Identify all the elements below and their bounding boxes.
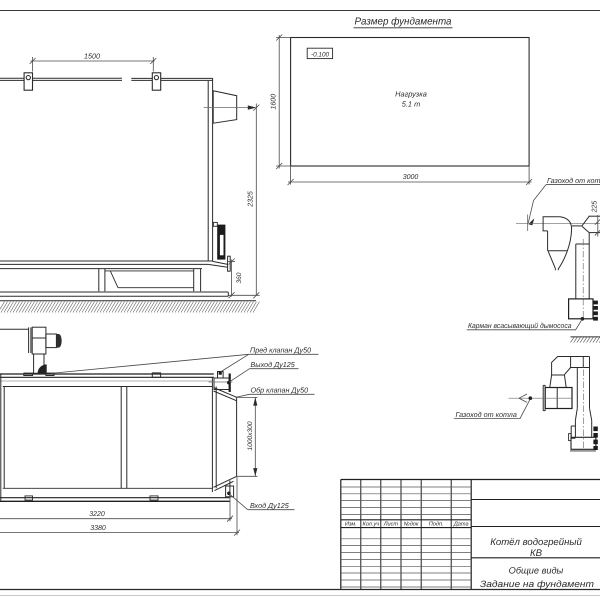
svg-text:2325: 2325 (248, 191, 255, 208)
svg-text:Газоход от котла: Газоход от котла (456, 410, 517, 419)
svg-text:КВ: КВ (530, 548, 543, 559)
svg-text:Газоход от котла: Газоход от котла (547, 176, 600, 185)
svg-text:1600: 1600 (271, 94, 278, 110)
svg-text:Подп.: Подп. (429, 521, 444, 528)
svg-text:5.1 т: 5.1 т (402, 99, 420, 108)
svg-text:Пред клапан Ду50: Пред клапан Ду50 (250, 346, 311, 355)
svg-text:Изм.: Изм. (345, 522, 357, 528)
svg-text:1500: 1500 (84, 52, 100, 61)
svg-text:-0.100: -0.100 (311, 51, 330, 58)
svg-text:Котёл водогрейный: Котёл водогрейный (490, 537, 582, 548)
svg-text:3000: 3000 (403, 174, 419, 181)
svg-text:Кол.уч: Кол.уч (362, 522, 379, 528)
svg-text:Выход Ду125: Выход Ду125 (251, 360, 296, 369)
svg-text:Общие виды: Общие виды (509, 566, 564, 576)
svg-text:1000х300: 1000х300 (247, 421, 254, 450)
svg-text:№док: №док (404, 521, 419, 528)
svg-text:3380: 3380 (90, 525, 106, 532)
svg-text:3220: 3220 (89, 511, 105, 518)
svg-text:Лист: Лист (383, 522, 399, 528)
svg-text:360: 360 (236, 272, 243, 283)
svg-text:Дата: Дата (453, 522, 469, 528)
svg-text:Карман всасывающий дымососа: Карман всасывающий дымососа (468, 321, 572, 330)
svg-text:Задание на фундамент: Задание на фундамент (480, 579, 594, 589)
svg-text:Размер фундамента: Размер фундамента (355, 17, 452, 28)
svg-text:225: 225 (592, 201, 599, 214)
svg-text:Обр клапан Ду50: Обр клапан Ду50 (251, 386, 309, 395)
svg-text:Вход Ду125: Вход Ду125 (250, 501, 290, 510)
svg-text:Нагрузка: Нагрузка (395, 90, 427, 99)
